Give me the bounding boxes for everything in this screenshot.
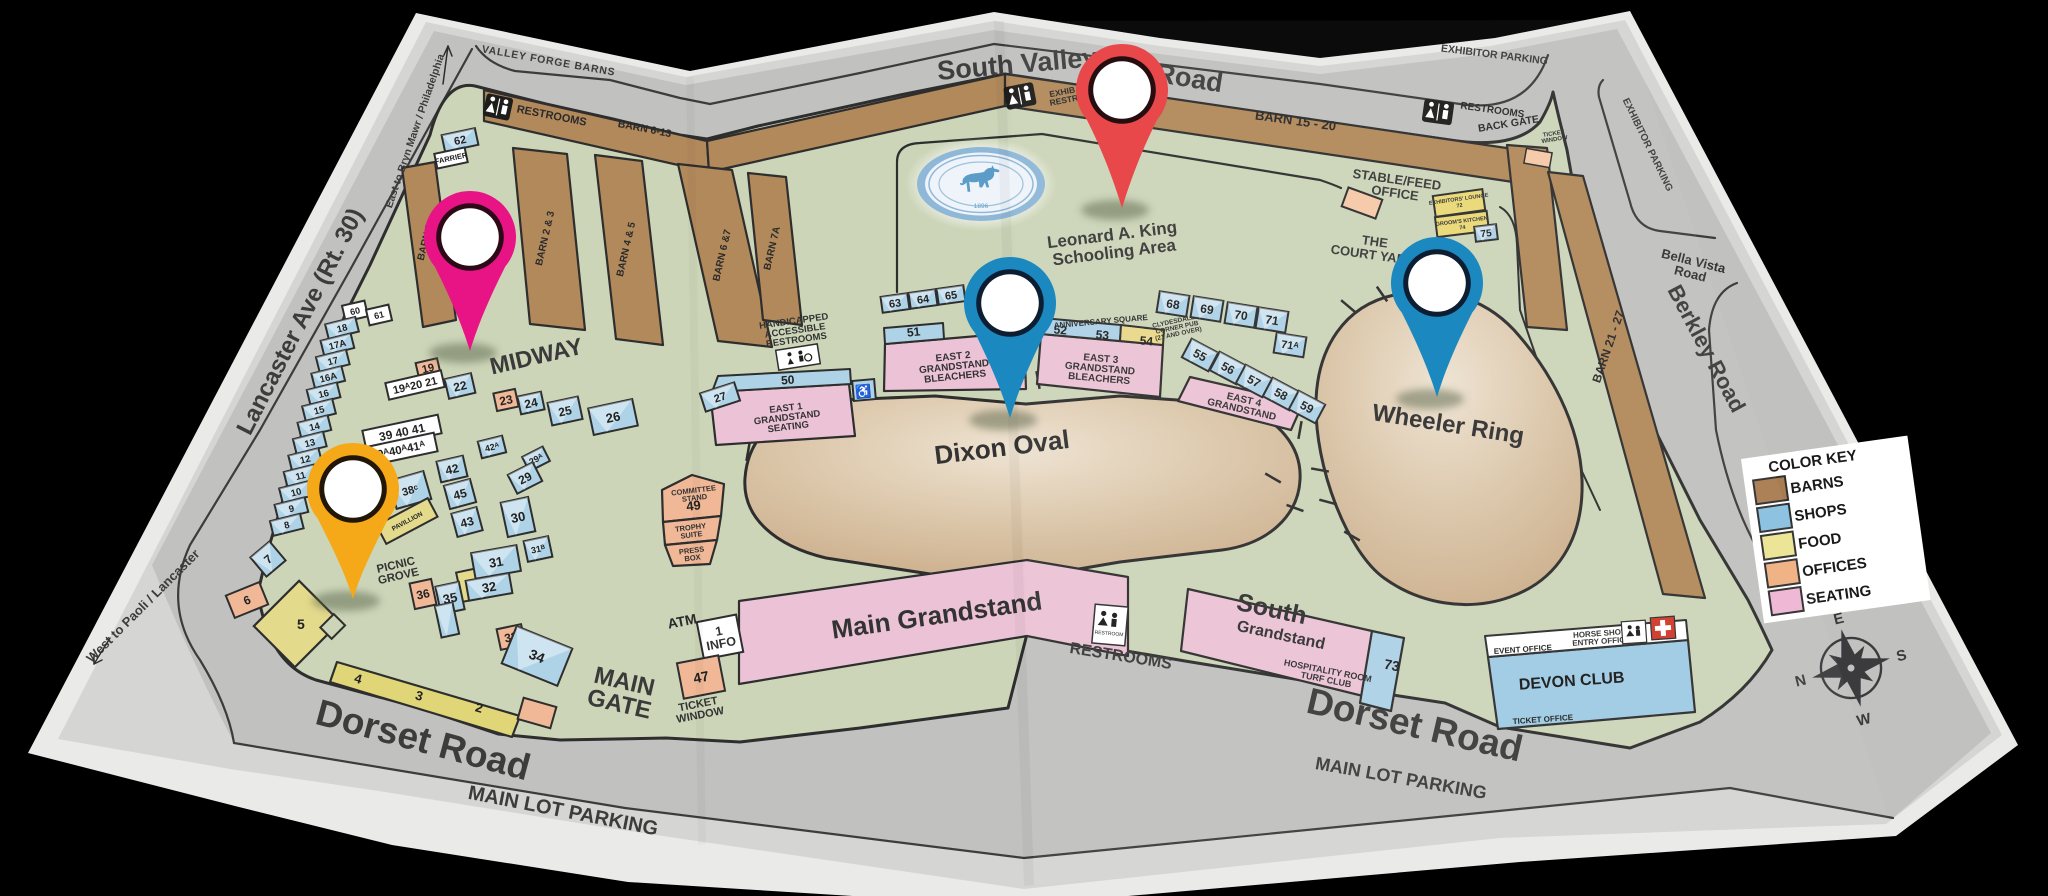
svg-text:51: 51 — [906, 324, 921, 339]
svg-text:65: 65 — [944, 289, 958, 303]
svg-text:32: 32 — [481, 579, 498, 596]
svg-text:31: 31 — [488, 554, 505, 571]
svg-text:26: 26 — [604, 408, 621, 426]
svg-text:50: 50 — [781, 373, 796, 388]
svg-text:♿: ♿ — [855, 383, 872, 399]
svg-text:62: 62 — [453, 134, 467, 148]
svg-text:1896: 1896 — [974, 203, 989, 210]
svg-text:63: 63 — [888, 297, 902, 311]
svg-text:30: 30 — [509, 508, 526, 526]
svg-text:5: 5 — [297, 616, 305, 632]
